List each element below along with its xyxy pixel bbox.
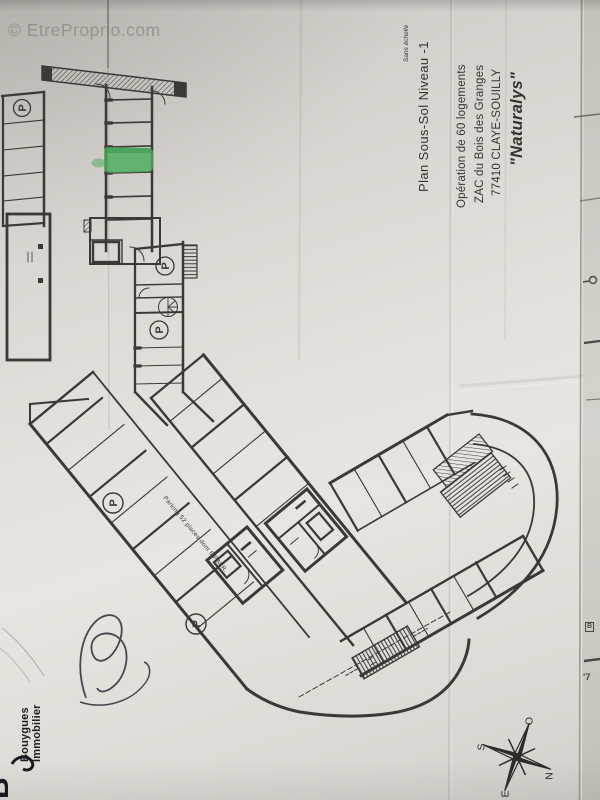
svg-text:B: B: [0, 777, 15, 799]
storage-room-left: [7, 214, 50, 360]
watermark: © EtreProprio.com: [8, 20, 161, 41]
edge-fragment-7: '7: [583, 672, 591, 683]
parking-symbols: P P P P P: [14, 100, 207, 635]
entry-ramp-right: [427, 414, 557, 618]
drawing-title: Plan Sous-Sol Niveau -1: [416, 41, 431, 192]
company-logo-icon: B: [0, 757, 33, 799]
green-highlight-marker: [92, 147, 154, 173]
company-logo-text: Bouygues Immobilier: [20, 704, 43, 762]
stair-core-2: [265, 489, 346, 571]
project-line-1: Opération de 60 logements: [456, 64, 468, 208]
scale-note: Sans échelle: [403, 25, 410, 62]
gate-ramp: [299, 612, 450, 697]
signature: [0, 615, 150, 705]
compass-rose: O S N E: [476, 717, 556, 798]
utility-rooms-top: [84, 218, 160, 264]
company-line-2: Immobilier: [32, 704, 44, 762]
entry-ramp-hatched: [42, 66, 186, 104]
company-line-1: Bouygues: [20, 704, 32, 762]
parking-symbol-p: P: [108, 499, 120, 506]
compass-north-label: N: [544, 772, 556, 780]
parking-symbol-p: P: [191, 620, 203, 627]
compass-east-label: E: [500, 790, 512, 797]
project-line-2: ZAC du Bois des Granges: [474, 65, 486, 203]
photographed-floor-plan: © EtreProprio.com Sans échelle Plan Sous…: [0, 0, 600, 800]
compass-south-label: S: [476, 743, 488, 750]
aisle-label: Parking 52 places dont 6 P.M.R.: [161, 495, 228, 574]
compass-west-label: O: [524, 717, 536, 725]
project-line-3: 77410 CLAYE-SOUILLY: [491, 69, 503, 196]
project-name: "Naturalys": [508, 72, 527, 166]
parking-symbol-p: P: [17, 104, 29, 111]
parking-symbol-p: P: [154, 326, 166, 333]
bottom-boundary-wall: [247, 640, 469, 716]
parking-symbol-p: P: [160, 262, 172, 269]
edge-fragment-b: B: [585, 622, 594, 632]
